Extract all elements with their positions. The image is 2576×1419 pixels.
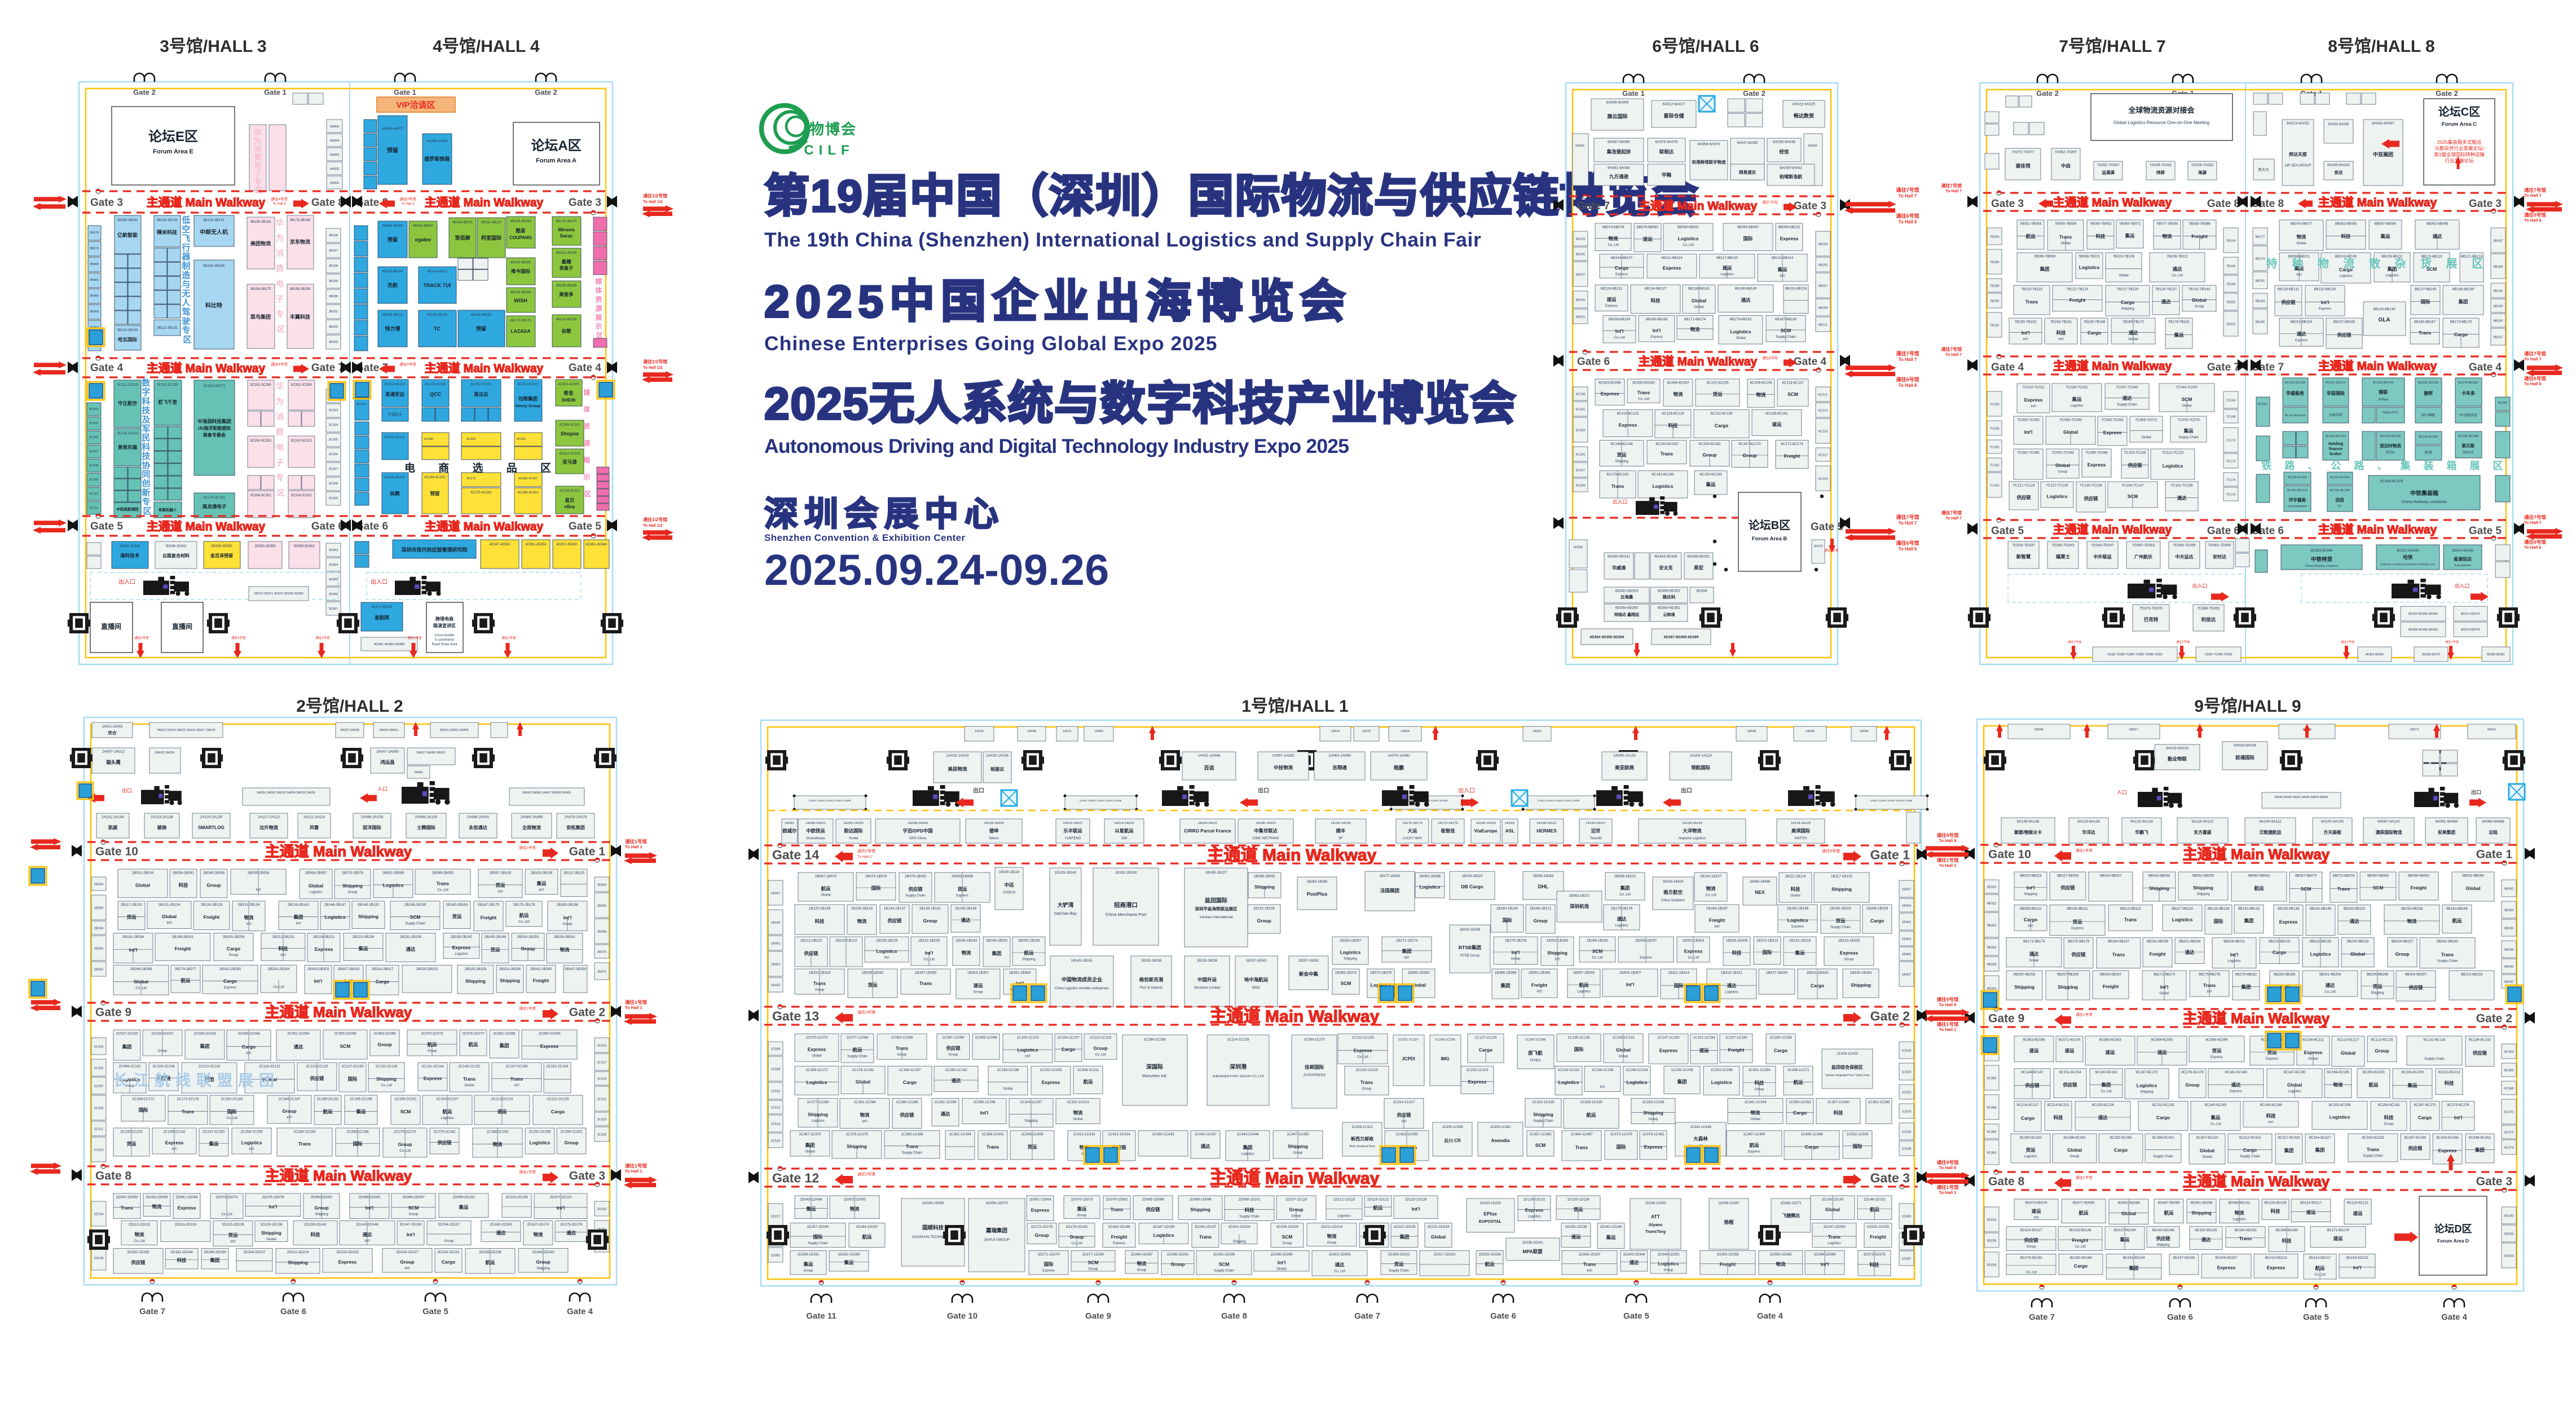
svg-text:科比特: 科比特: [205, 302, 222, 309]
svg-text:7C162: 7C162: [1989, 464, 1999, 468]
svg-text:Int'l: Int'l: [2033, 1216, 2038, 1219]
svg-text:主通道 Main Walkway: 主通道 Main Walkway: [1207, 846, 1377, 865]
svg-text:2B082-2B085: 2B082-2B085: [382, 871, 404, 875]
svg-text:华威通: 华威通: [1612, 565, 1626, 571]
svg-text:Cargo: Cargo: [442, 1259, 455, 1265]
svg-text:7B198: 7B198: [2226, 283, 2236, 287]
svg-text:物流: 物流: [1327, 1233, 1337, 1239]
svg-text:以星航运: 以星航运: [1115, 828, 1134, 834]
svg-text:1B104-1B107: 1B104-1B107: [1700, 875, 1722, 879]
svg-text:Gate 1: Gate 1: [394, 88, 416, 96]
svg-text:Express: Express: [1468, 1079, 1487, 1085]
svg-text:1B411-1B414: 1B411-1B414: [1668, 971, 1690, 975]
svg-text:7A072-7A077: 7A072-7A077: [2012, 151, 2035, 155]
svg-text:集运: 集运: [1706, 482, 1716, 487]
svg-text:9号馆/HALL 9: 9号馆/HALL 9: [2194, 697, 2301, 716]
svg-text:9D230: 9D230: [2504, 1215, 2513, 1218]
svg-text:安美集团: 安美集团: [2438, 830, 2455, 835]
svg-text:RTSB集团: RTSB集团: [1459, 945, 1481, 950]
svg-text:南方航空: 南方航空: [1663, 889, 1683, 895]
svg-text:3B200: 3B200: [329, 295, 338, 298]
svg-text:1C178-1C181: 1C178-1C181: [852, 1068, 874, 1072]
svg-text:航运: 航运: [1794, 1079, 1803, 1085]
svg-text:供应链: 供应链: [908, 887, 923, 892]
svg-text:1C464-1C467: 1C464-1C467: [1570, 1132, 1593, 1136]
svg-text:7D362-7D365: 7D362-7D365: [2208, 544, 2231, 548]
svg-text:2C313: 2C313: [94, 1149, 103, 1152]
svg-text:出入口: 出入口: [118, 578, 135, 585]
svg-text:Shipping: Shipping: [1831, 887, 1852, 892]
svg-text:物流: 物流: [1776, 1262, 1786, 1267]
svg-text:1C522: 1C522: [1901, 1091, 1911, 1095]
svg-text:China Railway container: China Railway container: [2402, 499, 2447, 504]
svg-text:皓鹏: 皓鹏: [1394, 764, 1404, 770]
svg-text:Gate 8: Gate 8: [95, 1170, 132, 1183]
svg-text:供应链: 供应链: [887, 918, 902, 924]
svg-text:Supply Chain: Supply Chain: [1389, 1270, 1409, 1273]
svg-text:6C207: 6C207: [1575, 469, 1585, 473]
svg-text:SCM: SCM: [1219, 1262, 1230, 1267]
svg-text:Gate 7: Gate 7: [2029, 1312, 2055, 1322]
svg-text:通往7号馆: 通往7号馆: [1762, 200, 1777, 205]
svg-text:8C225-8C228: 8C225-8C228: [2380, 435, 2401, 438]
svg-text:9C307-9C310: 9C307-9C310: [2196, 1136, 2218, 1140]
svg-text:1C305-1C308: 1C305-1C308: [1442, 1126, 1463, 1129]
svg-text:4C298-4C301: 4C298-4C301: [517, 491, 539, 495]
svg-text:2B314-2B317: 2B314-2B317: [372, 967, 394, 971]
svg-text:Express: Express: [1042, 1270, 1055, 1273]
svg-text:Gate 5: Gate 5: [569, 521, 602, 532]
svg-text:1B427-1B430: 1B427-1B430: [1766, 971, 1788, 975]
svg-text:邦达天原: 邦达天原: [2289, 152, 2307, 157]
svg-text:1C391-1C394: 1C391-1C394: [949, 1132, 971, 1136]
svg-text:Shipping: Shipping: [1022, 958, 1035, 962]
svg-text:8C211-8C214: 8C211-8C214: [2326, 381, 2346, 385]
svg-text:预留: 预留: [430, 491, 439, 496]
svg-text:RZDL: RZDL: [2386, 451, 2395, 455]
svg-text:论坛D区: 论坛D区: [2434, 1223, 2472, 1235]
svg-text:1A258-1A261: 1A258-1A261: [805, 822, 825, 825]
svg-text:Trans: Trans: [510, 1076, 523, 1082]
svg-text:风雷: 风雷: [310, 825, 319, 830]
svg-text:2D139-2D142: 2D139-2D142: [304, 1223, 327, 1227]
svg-text:8D341-8D346: 8D341-8D346: [2452, 549, 2473, 553]
svg-text:9A039 9A040-9A041 9A042 9A043-: 9A039 9A040-9A041 9A042 9A043-9A044: [2275, 796, 2328, 799]
svg-text:1A172-1A175: 1A172-1A175: [1438, 822, 1457, 825]
svg-text:1D296-1D299: 1D296-1D299: [1270, 1253, 1293, 1257]
svg-text:1D258-1D267: 1D258-1D267: [1718, 1202, 1740, 1205]
svg-text:9B313-9B316: 9B313-9B316: [2461, 973, 2483, 977]
svg-text:集团: 集团: [1620, 885, 1630, 891]
svg-text:9C362: 9C362: [1987, 1152, 1996, 1155]
svg-text:8B179: 8B179: [2256, 258, 2265, 261]
svg-text:Int'l: Int'l: [862, 1120, 867, 1123]
svg-text:Shipping: Shipping: [465, 979, 486, 984]
svg-text:集团: 集团: [1677, 1079, 1687, 1085]
svg-text:1C077-1C080: 1C077-1C080: [846, 1036, 869, 1040]
svg-text:通往6号馆: 通往6号馆: [2524, 376, 2546, 381]
svg-text:斯贝斯: 斯贝斯: [2462, 443, 2475, 448]
svg-text:哈瓦国际: 哈瓦国际: [118, 337, 138, 342]
svg-text:Hecny Group: Hecny Group: [516, 404, 540, 408]
svg-text:Shipping: Shipping: [2014, 984, 2035, 990]
svg-text:Shipping: Shipping: [2121, 307, 2134, 311]
svg-text:Express: Express: [1605, 305, 1618, 308]
svg-text:1D172-1D175: 1D172-1D175: [1031, 1225, 1053, 1229]
svg-text:LUCKY WAY: LUCKY WAY: [1403, 837, 1423, 840]
svg-text:航运: 航运: [428, 1042, 437, 1047]
svg-text:Forum Area E: Forum Area E: [153, 148, 193, 155]
svg-text:华翰: 华翰: [1662, 172, 1672, 178]
svg-text:SCM: SCM: [340, 1043, 351, 1049]
svg-text:Cargo: Cargo: [2074, 1263, 2088, 1269]
svg-text:通往2号馆: 通往2号馆: [315, 636, 330, 640]
svg-text:2B038-2B041: 2B038-2B041: [173, 871, 195, 875]
svg-text:1B467: 1B467: [1902, 973, 1912, 977]
svg-text:Sinotrans Limited: Sinotrans Limited: [1194, 986, 1220, 990]
svg-text:中铁集装箱: 中铁集装箱: [2410, 490, 2438, 497]
svg-text:2C132-2C135: 2C132-2C135: [375, 1065, 398, 1069]
svg-text:1C350-1C353: 1C350-1C353: [1789, 1100, 1811, 1104]
svg-text:物流: 物流: [244, 915, 254, 920]
svg-text:Group: Group: [1257, 918, 1271, 924]
svg-text:Int'l: Int'l: [539, 888, 544, 892]
svg-text:出口: 出口: [122, 787, 132, 794]
svg-text:Chinese Enterprises Going Glob: Chinese Enterprises Going Global Expo 20…: [764, 332, 1218, 355]
svg-text:中外联运: 中外联运: [2094, 554, 2112, 559]
svg-text:嘉瑞集团: 嘉瑞集团: [985, 1227, 1007, 1234]
svg-text:1B461: 1B461: [1902, 921, 1912, 924]
svg-text:3D359-3D362: 3D359-3D362: [293, 545, 315, 548]
svg-text:通往7号馆: 通往7号馆: [1896, 514, 1919, 520]
svg-text:9D171-9D174: 9D171-9D174: [2327, 1228, 2349, 1232]
svg-text:易贝: 易贝: [565, 497, 575, 503]
svg-text:2C169-2C172: 2C169-2C172: [132, 1098, 155, 1101]
svg-text:航运: 航运: [1084, 1079, 1093, 1085]
svg-text:通往1/2号馆: 通往1/2号馆: [643, 517, 667, 522]
svg-text:通往1号馆: 通往1号馆: [1937, 857, 1959, 863]
svg-text:Trans: Trans: [463, 1076, 476, 1082]
svg-text:Group: Group: [2185, 1082, 2199, 1088]
svg-text:7B060-7B063: 7B060-7B063: [2090, 222, 2112, 226]
svg-text:2A080-2A085: 2A080-2A085: [521, 816, 543, 819]
svg-text:通往7号馆: 通往7号馆: [2524, 351, 2546, 356]
svg-text:2D175-2D178: 2D175-2D178: [560, 1223, 583, 1227]
svg-text:1B355-1B358: 1B355-1B358: [1533, 875, 1554, 878]
svg-text:Global: Global: [2296, 242, 2306, 245]
svg-text:4C204-: 4C204-: [356, 403, 367, 406]
svg-text:7C144-7C147: 7C144-7C147: [2121, 484, 2144, 488]
svg-text:Express: Express: [2217, 1265, 2236, 1271]
svg-text:8B181: 8B181: [2256, 280, 2265, 283]
svg-text:Express: Express: [1650, 336, 1663, 339]
svg-text:国际: 国际: [353, 1141, 363, 1147]
svg-text:Gate 4: Gate 4: [2469, 362, 2502, 373]
svg-text:通往2号馆: 通往2号馆: [407, 636, 422, 640]
svg-text:8号馆/HALL 8: 8号馆/HALL 8: [2328, 37, 2434, 56]
svg-text:特力博: 特力博: [385, 325, 400, 332]
svg-text:Freight: Freight: [2411, 885, 2427, 891]
svg-text:Gate 13: Gate 13: [772, 1008, 819, 1023]
svg-text:9C275-9C278: 9C275-9C278: [2447, 1103, 2469, 1107]
svg-text:2D167-2D170: 2D167-2D170: [527, 1223, 549, 1227]
svg-text:1C434-1C437: 1C434-1C437: [1194, 1132, 1217, 1136]
svg-text:2C113-2C116: 2C113-2C116: [199, 1065, 221, 1069]
svg-text:Int'l: Int'l: [1714, 926, 1719, 929]
svg-text:COSCO: COSCO: [1003, 891, 1015, 894]
svg-text:通达: 通达: [2231, 1082, 2241, 1088]
svg-text:9C139-9C142: 9C139-9C142: [2469, 1038, 2491, 1042]
svg-text:1B380-1B383: 1B380-1B383: [1408, 971, 1430, 975]
svg-text:通达: 通达: [2129, 330, 2138, 336]
svg-text:Co.,Ltd: Co.,Ltd: [2025, 1271, 2036, 1275]
svg-text:China Logistics member enterpr: China Logistics member enterprises: [1055, 987, 1109, 990]
svg-text:4D347-4D350: 4D347-4D350: [489, 543, 510, 547]
svg-text:9C206-9C209: 9C206-9C209: [2401, 1070, 2424, 1074]
svg-text:Gate 9: Gate 9: [95, 1006, 131, 1019]
svg-text:7C069-7C072: 7C069-7C072: [2135, 418, 2157, 422]
svg-text:9A085-9A086: 9A085-9A086: [2482, 820, 2504, 824]
svg-text:1B145-1B148: 1B145-1B148: [955, 907, 977, 911]
svg-text:第19届中国（深圳）国际物流与供应链博览会: 第19届中国（深圳）国际物流与供应链博览会: [764, 171, 1699, 221]
svg-text:GLA: GLA: [2378, 317, 2390, 323]
svg-text:2B097-2B100: 2B097-2B100: [490, 871, 512, 875]
svg-text:Logistics: Logistics: [2339, 275, 2352, 278]
svg-text:Freight: Freight: [2069, 297, 2086, 303]
svg-text:通往2号馆: 通往2号馆: [857, 1171, 875, 1176]
svg-text:9C196-9C199: 9C196-9C199: [2327, 1070, 2349, 1074]
svg-text:Shipping: Shipping: [2024, 893, 2037, 896]
svg-text:9A091-9A094: 9A091-9A094: [2436, 820, 2458, 824]
svg-text:Logistics: Logistics: [309, 891, 322, 894]
svg-text:通往1号馆: 通往1号馆: [2076, 1012, 2093, 1017]
svg-text:Global: Global: [821, 894, 830, 897]
svg-text:科技: 科技: [1668, 422, 1678, 428]
svg-text:1B305-1B308: 1B305-1B308: [1726, 939, 1748, 943]
svg-text:1B363-1B372: 1B363-1B372: [1569, 894, 1590, 898]
svg-text:4B182-4B185: 4B182-4B185: [556, 252, 577, 255]
svg-text:供应链: 供应链: [2062, 1082, 2077, 1088]
svg-text:扬程: 扬程: [1724, 1219, 1734, 1225]
svg-text:通往3号馆: 通往3号馆: [399, 196, 416, 201]
svg-text:1C147-1C150: 1C147-1C150: [1657, 1036, 1680, 1040]
svg-text:3C207: 3C207: [89, 450, 98, 453]
svg-text:主通道 Main Walkway: 主通道 Main Walkway: [425, 196, 544, 209]
svg-text:云川 CR: 云川 CR: [1444, 1138, 1461, 1143]
svg-text:7B188: 7B188: [1990, 285, 2000, 288]
svg-text:深圳市现代供应链管理研究院: 深圳市现代供应链管理研究院: [401, 547, 467, 553]
svg-text:3C282-3C285: 3C282-3C285: [250, 384, 271, 387]
svg-text:Global: Global: [309, 883, 323, 888]
svg-text:7B069-7B072: 7B069-7B072: [2119, 222, 2141, 226]
svg-text:6D340-6D341: 6D340-6D341: [1608, 555, 1631, 559]
svg-text:To Hall 1: To Hall 1: [625, 844, 642, 849]
svg-text:7D397 7D398 7D399: 7D397 7D398 7D399: [2205, 653, 2232, 656]
svg-text:1B315-1B318: 1B315-1B318: [1789, 939, 1811, 943]
svg-text:2D094-2D097: 2D094-2D097: [402, 1196, 425, 1200]
svg-text:9C358: 9C358: [1987, 1107, 1996, 1110]
svg-text:Logistics: Logistics: [1678, 236, 1699, 241]
svg-text:Logistics: Logistics: [1725, 991, 1738, 994]
svg-text:安达: 安达: [2335, 169, 2344, 175]
svg-text:6B207: 6B207: [1818, 285, 1828, 288]
svg-text:8B189: 8B189: [2494, 266, 2503, 269]
svg-text:Co.,Ltd: Co.,Ltd: [518, 920, 529, 924]
svg-text:9B338: 9B338: [2504, 949, 2514, 952]
svg-text:1B206-1B209: 1B206-1B209: [1866, 907, 1888, 911]
svg-text:Holding: Holding: [2328, 442, 2343, 446]
svg-text:航运: 航运: [1870, 1206, 1879, 1212]
svg-text:通往2号馆: 通往2号馆: [857, 1010, 875, 1015]
svg-text:Group: Group: [409, 1213, 419, 1216]
svg-text:1D036-1D055: 1D036-1D055: [922, 1201, 944, 1205]
svg-text:6B203: 6B203: [1818, 243, 1828, 246]
svg-text:2C247-2C250: 2C247-2C250: [202, 1130, 225, 1134]
svg-text:9A097-9A102: 9A097-9A102: [2377, 820, 2400, 824]
svg-text:7C095-7C098: 7C095-7C098: [2085, 451, 2108, 455]
svg-text:3C298-3C301: 3C298-3C301: [250, 494, 271, 497]
svg-text:1C495-1C498: 1C495-1C498: [1800, 1132, 1823, 1136]
svg-text:Miravia: Miravia: [558, 227, 575, 232]
svg-text:中航南航测控: 中航南航测控: [117, 506, 139, 512]
svg-text:Cargo: Cargo: [1715, 422, 1728, 428]
svg-text:海源: 海源: [2198, 169, 2207, 175]
svg-text:6B199: 6B199: [1576, 299, 1586, 302]
svg-text:9B163-9B166: 9B163-9B166: [2446, 907, 2468, 911]
svg-text:Int'l: Int'l: [1653, 328, 1661, 333]
svg-text:1D206-1D209: 1D206-1D209: [1276, 1225, 1298, 1229]
svg-text:1B134-1B137: 1B134-1B137: [884, 907, 906, 911]
svg-text:2B198-2B201: 2B198-2B201: [172, 935, 194, 939]
svg-text:9C317-9C320: 9C317-9C320: [2278, 1136, 2300, 1140]
svg-text:4B144-4B155: 4B144-4B155: [471, 314, 492, 317]
svg-text:Logistics: Logistics: [2047, 493, 2068, 499]
svg-text:迅田: 迅田: [2336, 497, 2344, 503]
svg-text:云陆: 云陆: [2489, 830, 2498, 835]
svg-text:8D358 8D359 8D360: 8D358 8D359 8D360: [2408, 628, 2438, 632]
svg-text:通往7号馆: 通往7号馆: [2524, 514, 2546, 520]
svg-text:集运: 集运: [1606, 1235, 1616, 1240]
svg-text:通达: 通达: [2201, 1237, 2211, 1242]
svg-text:1A001 1A002 1A003 1A004 1A005: 1A001 1A002 1A003 1A004 1A005: [1870, 799, 1913, 803]
svg-text:Gate 6: Gate 6: [2167, 1312, 2193, 1322]
svg-text:7B098-7B101: 7B098-7B101: [2079, 255, 2101, 259]
svg-text:1A095-1A100: 1A095-1A100: [1613, 754, 1636, 758]
svg-text:4C302-4C305: 4C302-4C305: [558, 383, 579, 386]
svg-text:DaChan Bay: DaChan Bay: [1054, 912, 1077, 916]
svg-text:通往6号馆: 通往6号馆: [1896, 213, 1919, 219]
svg-text:1C100-1C103: 1C100-1C103: [1016, 1036, 1039, 1040]
svg-text:7C028-7C031: 7C028-7C031: [2066, 386, 2088, 390]
svg-text:6B146-6B149: 6B146-6B149: [1735, 287, 1757, 291]
svg-text:2D116-2D119: 2D116-2D119: [175, 1223, 197, 1227]
svg-text:主通道 Main Walkway: 主通道 Main Walkway: [147, 519, 266, 533]
svg-text:9C343-9C346: 9C343-9C346: [2436, 1136, 2459, 1140]
svg-text:Group: Group: [2195, 305, 2204, 309]
svg-text:1A130-1A149: 1A130-1A149: [1682, 822, 1702, 825]
svg-text:Express: Express: [540, 1043, 559, 1049]
svg-text:科技: 科技: [1755, 1080, 1764, 1086]
svg-text:1C314-1C317: 1C314-1C317: [1393, 1100, 1415, 1104]
svg-text:9C176-9C179: 9C176-9C179: [2181, 1070, 2204, 1074]
svg-text:Co.,Ltd: Co.,Ltd: [1619, 893, 1630, 897]
svg-text:酷澎: 酷澎: [516, 228, 526, 233]
svg-text:Cargo: Cargo: [2021, 1115, 2035, 1121]
svg-text:1C157-1C160: 1C157-1C160: [1725, 1036, 1747, 1040]
svg-text:To Hall 7: To Hall 7: [1945, 517, 1962, 521]
svg-text:出入口: 出入口: [2454, 583, 2469, 589]
svg-text:Co.,Ltd: Co.,Ltd: [134, 1240, 144, 1243]
svg-text:Co.,Ltd: Co.,Ltd: [1614, 336, 1624, 340]
svg-text:6B171-6B174: 6B171-6B174: [1684, 318, 1706, 321]
svg-text:Shipping: Shipping: [2140, 1091, 2153, 1094]
svg-text:科技: 科技: [2445, 1081, 2454, 1086]
svg-text:2C051-2C054: 2C051-2C054: [287, 1032, 310, 1036]
svg-text:Co.,Ltd: Co.,Ltd: [1683, 244, 1693, 247]
svg-text:吉翔通: 吉翔通: [1332, 765, 1347, 770]
svg-text:通达: 通达: [2123, 395, 2132, 401]
svg-text:1B460-1B466: 1B460-1B466: [1750, 880, 1771, 884]
svg-text:Group: Group: [1293, 1151, 1303, 1154]
svg-text:1B088-1B091: 1B088-1B091: [1254, 875, 1276, 879]
svg-text:Cargo: Cargo: [1870, 918, 1884, 924]
svg-text:集运: 集运: [356, 1109, 366, 1114]
svg-text:Freight: Freight: [2150, 951, 2166, 957]
svg-text:To Hall 2: To Hall 2: [857, 855, 872, 859]
svg-text:1C508: 1C508: [770, 1068, 780, 1072]
svg-text:Gate 1: Gate 1: [2476, 848, 2513, 861]
svg-text:3C208: 3C208: [89, 464, 98, 468]
svg-text:九方通逊: 九方通逊: [1609, 174, 1629, 179]
svg-text:物流: 物流: [560, 947, 570, 953]
svg-text:2B364: 2B364: [597, 884, 607, 887]
svg-text:航运: 航运: [2369, 1082, 2379, 1088]
svg-text:9A139-9A146: 9A139-9A146: [2017, 820, 2040, 824]
svg-text:Cargo: Cargo: [223, 979, 237, 984]
svg-text:4B186-4B189: 4B186-4B189: [556, 284, 577, 288]
svg-text:3B196: 3B196: [329, 234, 338, 237]
svg-text:3D363: 3D363: [329, 549, 338, 552]
svg-text:2C222-2C225: 2C222-2C225: [547, 1098, 569, 1101]
svg-text:1D247-1D250: 1D247-1D250: [1823, 1225, 1846, 1229]
svg-text:Group: Group: [923, 918, 937, 924]
svg-text:QCC: QCC: [430, 391, 442, 397]
svg-text:Gate 10: Gate 10: [95, 845, 138, 858]
svg-text:EPlus: EPlus: [1483, 1211, 1497, 1217]
svg-text:科技: 科技: [2054, 1114, 2063, 1120]
svg-text:Freight: Freight: [481, 915, 497, 920]
svg-text:1A040: 1A040: [1806, 730, 1815, 733]
svg-text:集团: 集团: [2101, 1082, 2111, 1088]
svg-text:6B079-6B082: 6B079-6B082: [1637, 226, 1659, 230]
svg-text:RTSB Group: RTSB Group: [1460, 954, 1480, 958]
svg-text:9A125-9A130: 9A125-9A130: [2130, 820, 2153, 824]
svg-text:6C083-6C086: 6C083-6C086: [1599, 381, 1621, 385]
svg-text:8B074-8B077: 8B074-8B077: [2291, 222, 2313, 226]
svg-text:1B237-1B243: 1B237-1B243: [1246, 959, 1267, 963]
svg-text:Trans: Trans: [182, 1109, 195, 1114]
svg-text:哈铁: 哈铁: [2403, 554, 2413, 560]
svg-text:3B080: 3B080: [90, 263, 99, 266]
svg-text:集浩壹起拼: 集浩壹起拼: [1606, 149, 1631, 155]
svg-text:飞捷腾达: 飞捷腾达: [1782, 1213, 1800, 1218]
svg-text:1D135-1D138: 1D135-1D138: [1567, 1198, 1589, 1202]
svg-text:2B300-2B303: 2B300-2B303: [307, 967, 329, 971]
svg-text:Express: Express: [1748, 1150, 1760, 1153]
svg-text:9B332: 9B332: [2504, 888, 2514, 891]
svg-text:8B195: 8B195: [2494, 320, 2503, 323]
svg-text:4B156-4B159: 4B156-4B159: [510, 220, 531, 223]
